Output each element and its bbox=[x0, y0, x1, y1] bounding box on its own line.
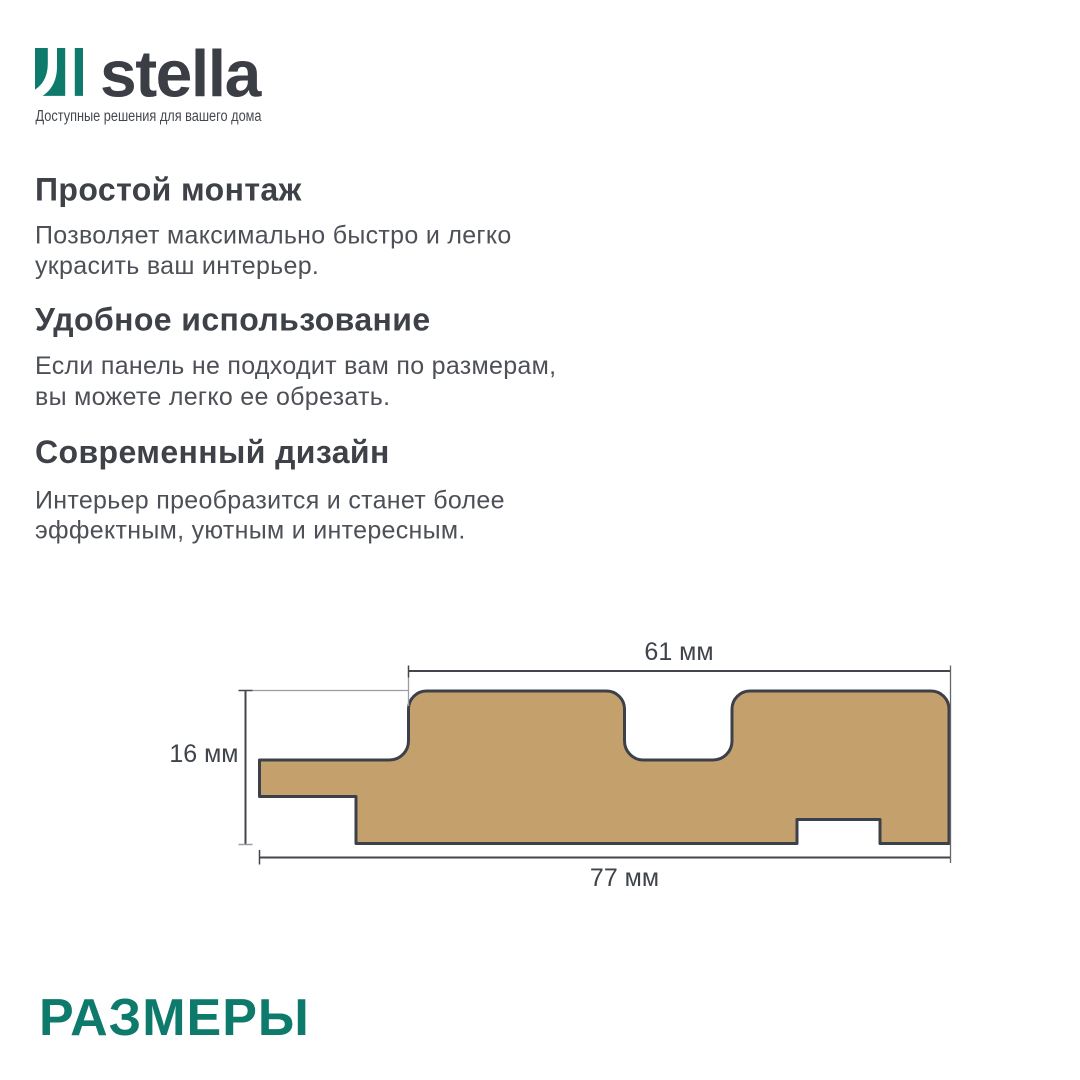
svg-text:украсить ваш интерьер.: украсить ваш интерьер. bbox=[35, 252, 319, 280]
svg-text:РАЗМЕРЫ: РАЗМЕРЫ bbox=[39, 989, 310, 1047]
svg-text:Современный дизайн: Современный дизайн bbox=[35, 434, 390, 470]
svg-text:Доступные решения для вашего д: Доступные решения для вашего дома bbox=[36, 108, 262, 125]
svg-text:Удобное использование: Удобное использование bbox=[35, 301, 431, 337]
svg-text:77 мм: 77 мм bbox=[590, 864, 659, 892]
svg-text:Позволяет максимально быстро и: Позволяет максимально быстро и легко bbox=[35, 222, 512, 250]
svg-text:Интерьер преобразится и станет: Интерьер преобразится и станет более bbox=[35, 486, 505, 514]
svg-text:Простой монтаж: Простой монтаж bbox=[35, 172, 302, 208]
svg-text:61 мм: 61 мм bbox=[644, 638, 713, 666]
svg-text:вы можете легко ее обрезать.: вы можете легко ее обрезать. bbox=[35, 383, 390, 411]
svg-text:16 мм: 16 мм bbox=[169, 740, 238, 768]
svg-text:эффектным, уютным и интересным: эффектным, уютным и интересным. bbox=[35, 517, 466, 545]
svg-text:Если панель не подходит вам по: Если панель не подходит вам по размерам, bbox=[35, 352, 556, 380]
svg-text:stella: stella bbox=[100, 37, 263, 111]
